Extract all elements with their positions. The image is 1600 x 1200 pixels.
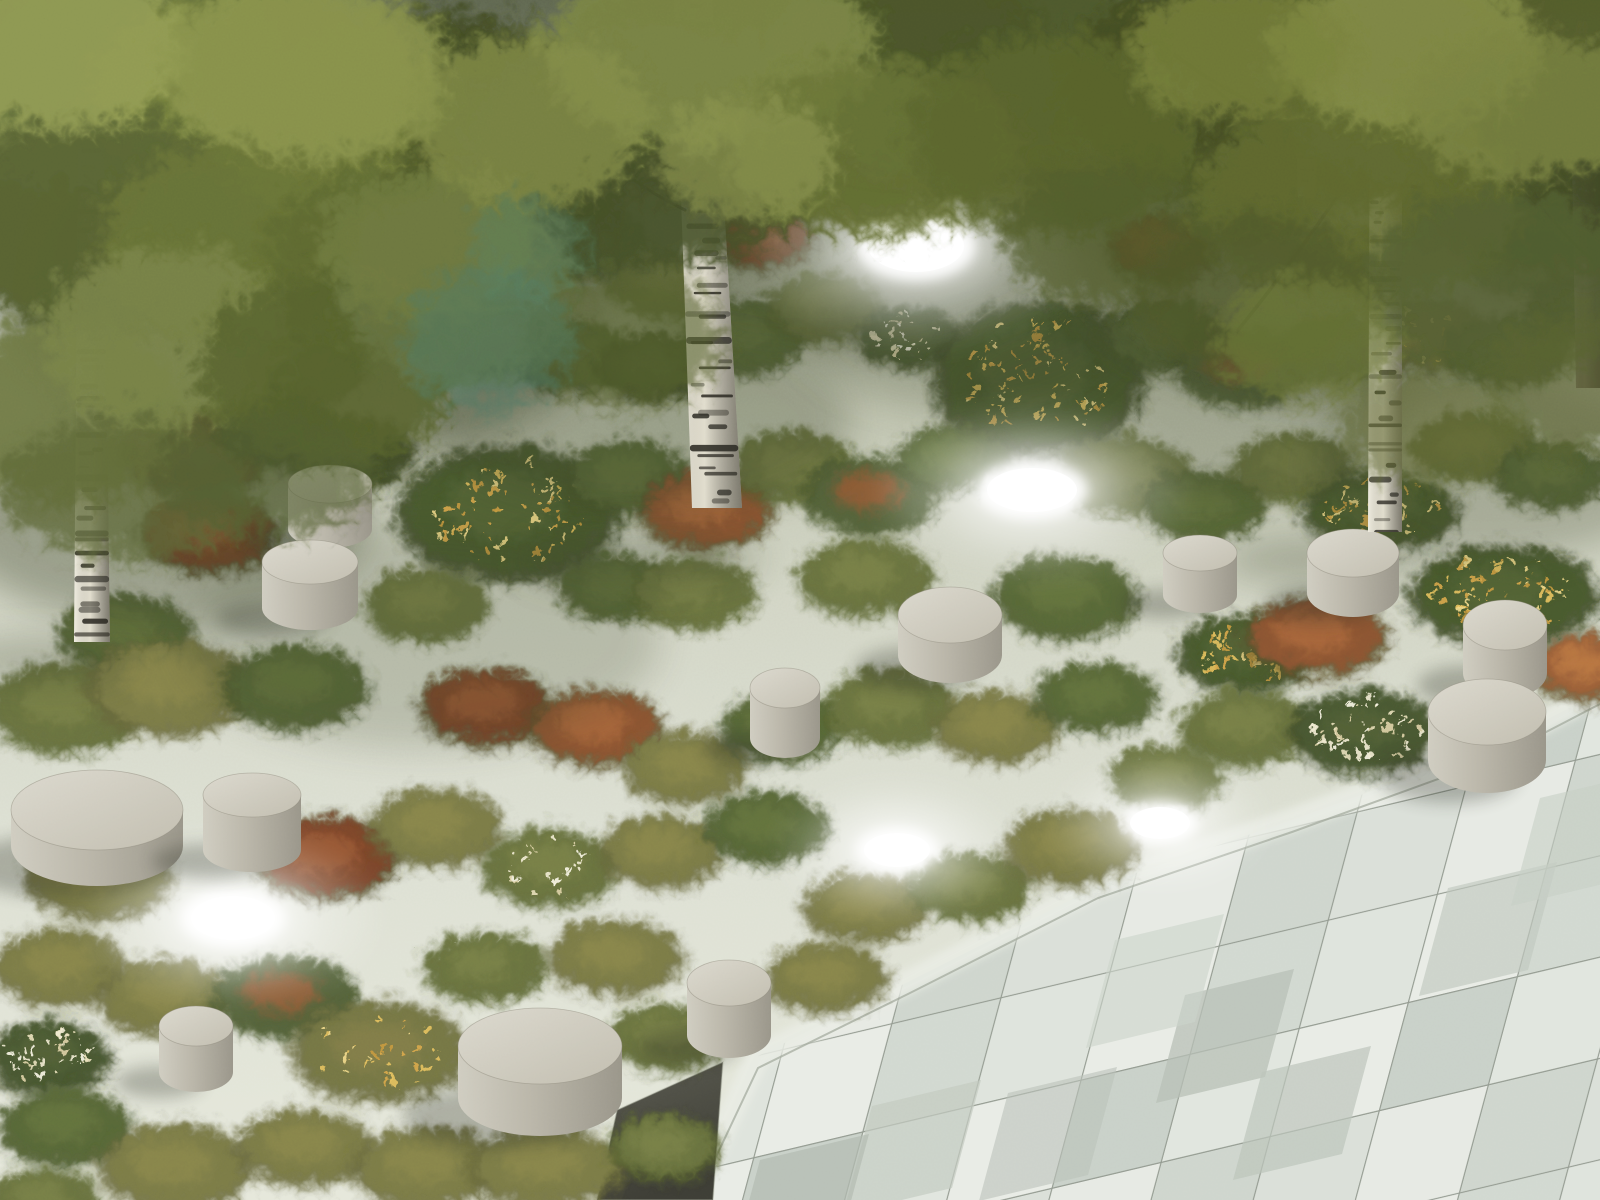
film-grain: [0, 0, 1600, 1200]
scene-canvas: Aerial rendering of a pocket-park plaza:…: [0, 0, 1600, 1200]
park-plaza-rendering: Aerial rendering of a pocket-park plaza:…: [0, 0, 1600, 1200]
